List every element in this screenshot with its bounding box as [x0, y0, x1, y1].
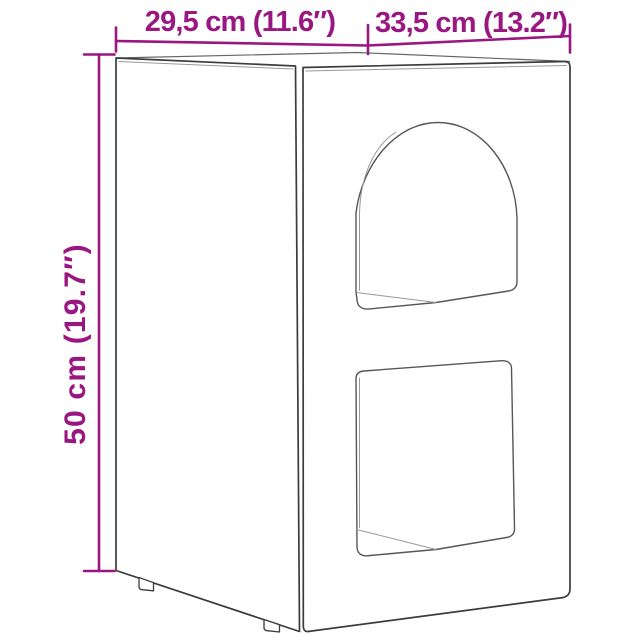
dimension-label-top-right: 33,5 cm (13.2″) — [375, 7, 567, 39]
product-dimension-diagram: 29,5 cm (11.6″) 33,5 cm (13.2″) 50 cm (1… — [0, 0, 640, 640]
dimension-label-height: 50 cm (19.7″) — [59, 243, 92, 445]
lower-opening — [356, 361, 515, 556]
cabinet-top-face-edges — [116, 53, 570, 62]
dimension-label-top-left: 29,5 cm (11.6″) — [145, 6, 336, 38]
cabinet-left-panel — [116, 58, 300, 632]
diagram-canvas: 29,5 cm (11.6″) 33,5 cm (13.2″) 50 cm (1… — [0, 0, 640, 640]
